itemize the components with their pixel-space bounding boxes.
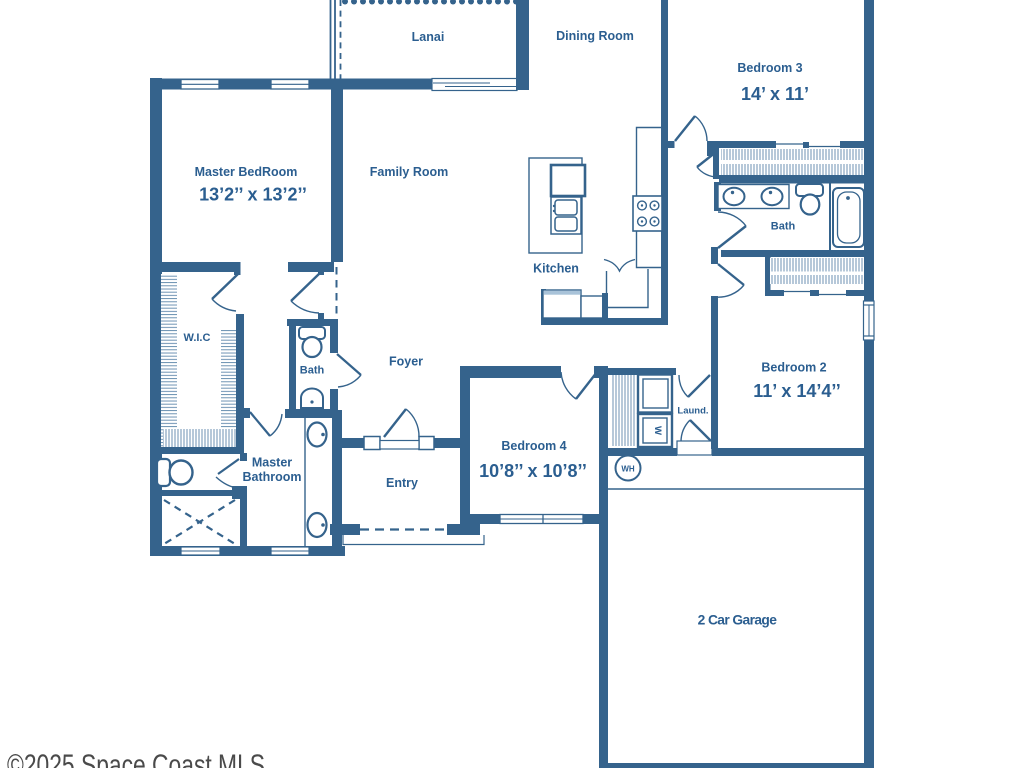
svg-text:Master BedRoom: Master BedRoom — [195, 165, 298, 179]
svg-text:Bedroom 4: Bedroom 4 — [501, 439, 566, 453]
svg-text:Bedroom 3: Bedroom 3 — [737, 61, 802, 75]
svg-text:10’8’’ x 10’8’’: 10’8’’ x 10’8’’ — [479, 461, 587, 481]
svg-text:Bedroom 2: Bedroom 2 — [761, 361, 826, 375]
svg-text:W.I.C: W.I.C — [184, 332, 211, 344]
svg-text:Foyer: Foyer — [389, 355, 423, 369]
svg-text:Bath: Bath — [771, 221, 796, 233]
svg-text:Lanai: Lanai — [412, 30, 445, 44]
svg-text:Kitchen: Kitchen — [533, 262, 579, 276]
svg-text:11’ x 14’4’’: 11’ x 14’4’’ — [753, 381, 840, 401]
svg-text:WH: WH — [621, 465, 635, 474]
svg-text:Master: Master — [252, 456, 292, 470]
svg-text:©2025 Space Coast MLS: ©2025 Space Coast MLS — [7, 749, 265, 768]
svg-text:Family Room: Family Room — [370, 165, 449, 179]
svg-text:2 Car Garage: 2 Car Garage — [698, 613, 778, 628]
svg-text:Laund.: Laund. — [677, 406, 708, 417]
svg-text:Bathroom: Bathroom — [242, 470, 301, 484]
svg-text:Dining Room: Dining Room — [556, 29, 634, 43]
svg-text:14’ x 11’: 14’ x 11’ — [741, 84, 809, 104]
svg-text:W: W — [652, 426, 663, 435]
svg-text:13’2’’ x 13’2’’: 13’2’’ x 13’2’’ — [199, 185, 307, 205]
svg-text:Bath: Bath — [300, 365, 325, 377]
svg-text:Entry: Entry — [386, 476, 418, 490]
